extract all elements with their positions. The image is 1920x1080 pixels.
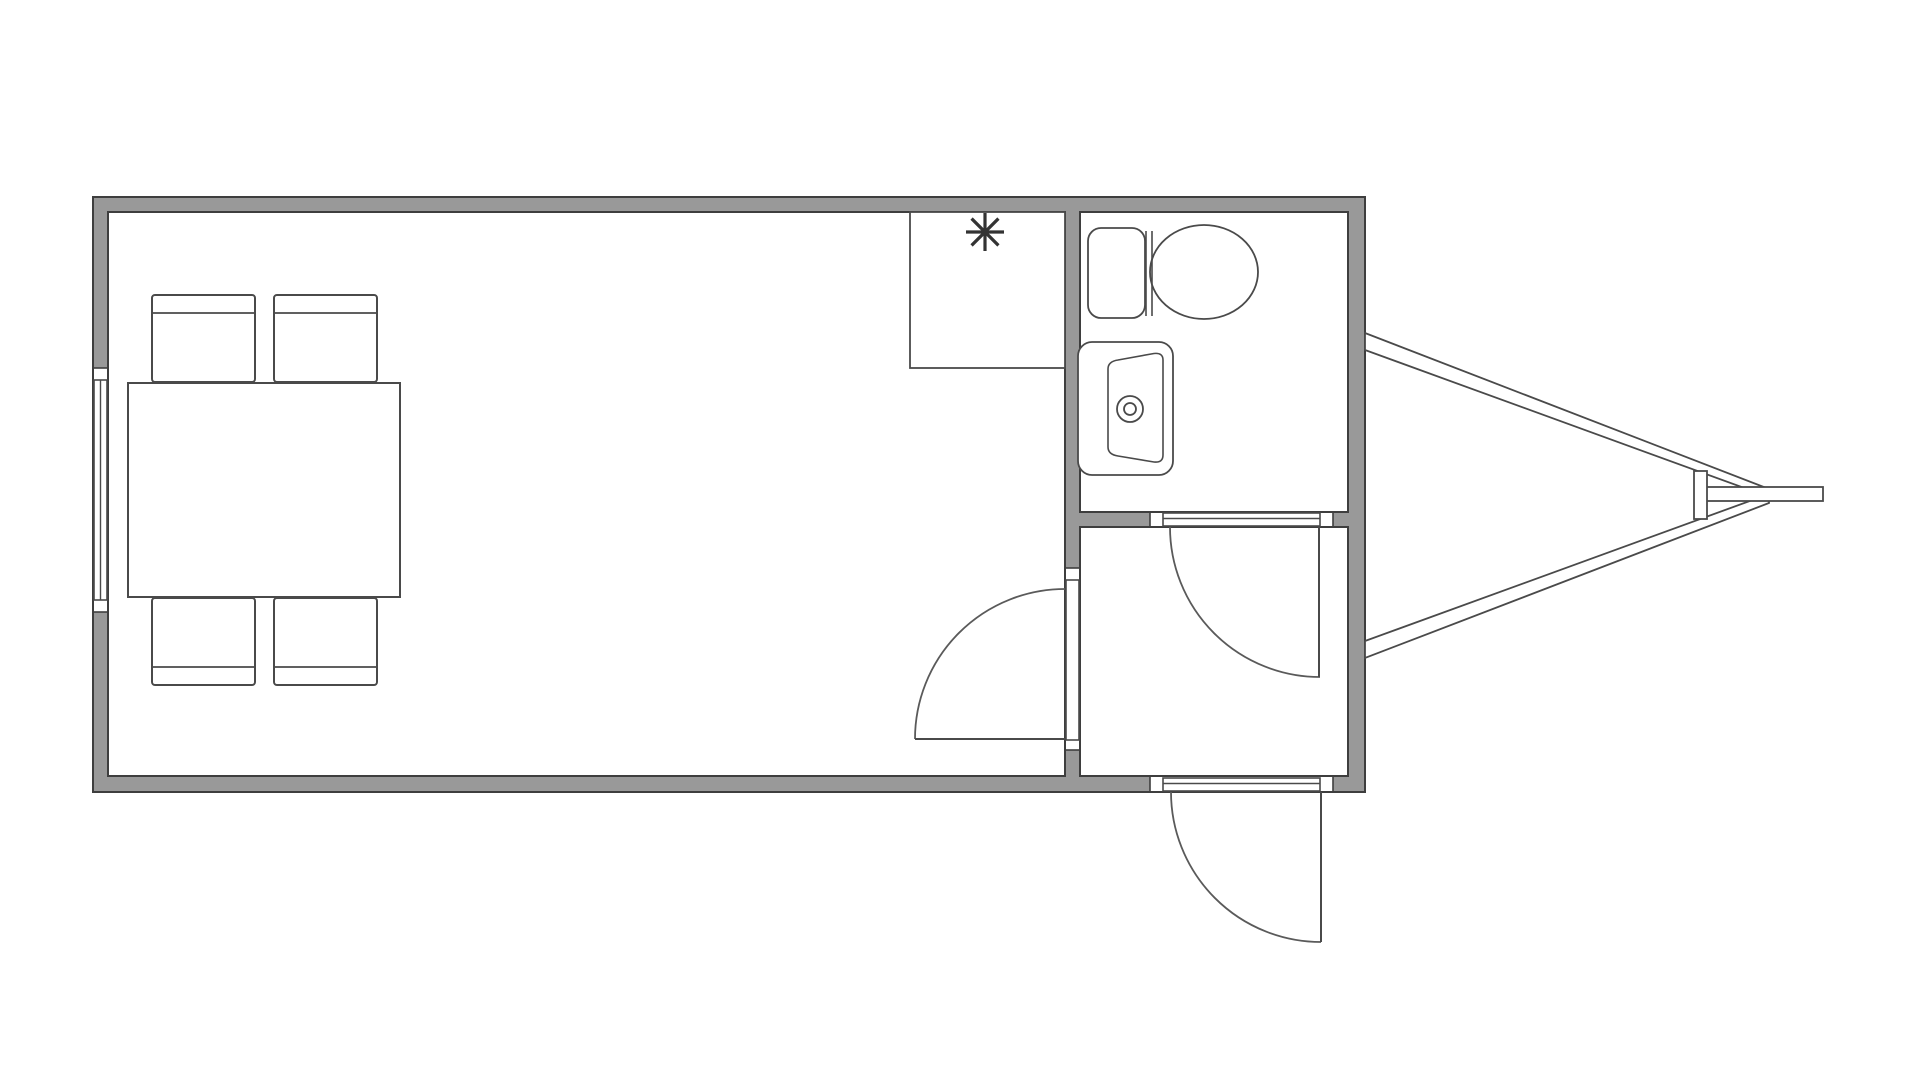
- chair-top-left-seat: [152, 295, 255, 382]
- asterisk-fixture-symbol: [966, 213, 1004, 251]
- wall-left-upper: [93, 197, 108, 368]
- chair-bottom-left: [152, 598, 255, 685]
- doorway-exterior: [1163, 778, 1320, 791]
- wall-bath-bottom-right: [1333, 512, 1348, 527]
- toilet-tank: [1088, 228, 1145, 318]
- wall-bath-bottom-left: [1065, 512, 1150, 527]
- wall-right: [1348, 197, 1365, 792]
- trailer-floor-plan: [0, 0, 1920, 1080]
- sink-drain-inner: [1124, 403, 1136, 415]
- chair-top-left: [152, 295, 255, 382]
- hitch-tongue-bar: [1700, 487, 1823, 501]
- chair-bottom-right: [274, 598, 377, 685]
- doorway-main-room: [1066, 580, 1079, 740]
- floor-plan-page: [0, 0, 1920, 1080]
- doorway-bathroom: [1163, 513, 1320, 526]
- chair-bottom-left-seat: [152, 598, 255, 685]
- toilet: [1088, 225, 1258, 319]
- wall-left-lower: [93, 612, 108, 792]
- dining-table: [128, 383, 400, 597]
- window-left: [94, 380, 107, 600]
- hitch-jack-bar: [1694, 471, 1707, 519]
- bathroom-sink: [1078, 342, 1173, 475]
- wall-partition-lower: [1065, 750, 1080, 777]
- kitchen-area: [910, 212, 1065, 368]
- chair-top-right-seat: [274, 295, 377, 382]
- wall-top: [93, 197, 1365, 212]
- chair-bottom-right-seat: [274, 598, 377, 685]
- wall-bottom-left: [93, 777, 1150, 792]
- toilet-bowl: [1150, 225, 1258, 319]
- chair-top-right: [274, 295, 377, 382]
